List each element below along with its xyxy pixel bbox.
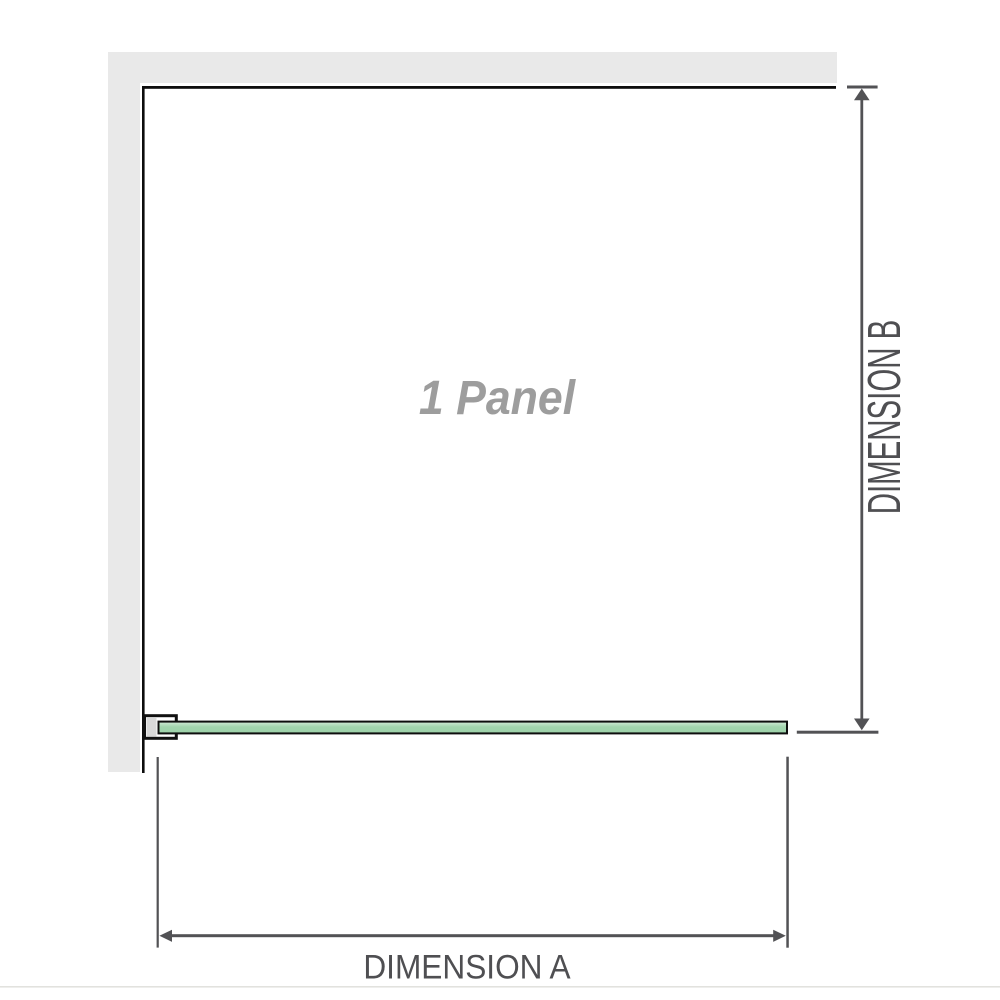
svg-text:DIMENSION B: DIMENSION B — [860, 320, 911, 515]
svg-text:DIMENSION A: DIMENSION A — [363, 947, 570, 985]
svg-text:1 Panel: 1 Panel — [419, 371, 576, 425]
